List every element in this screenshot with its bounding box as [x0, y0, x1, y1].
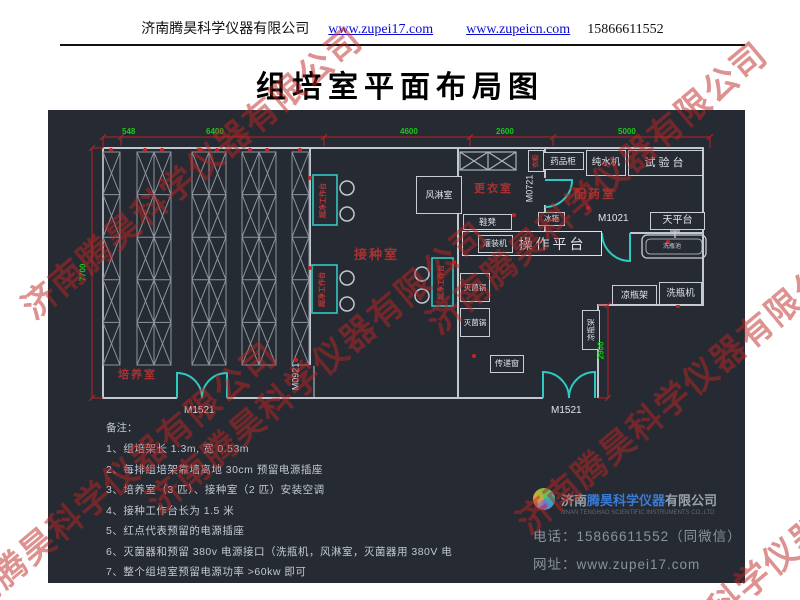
- room-label-inoculation: 接种室: [354, 248, 399, 261]
- bottle-rack-vertical-label: 凉瓶架: [587, 319, 595, 342]
- fridge-box: 冰箱: [538, 212, 565, 226]
- sterilizer-box-2: 灭菌锅: [460, 308, 490, 337]
- notes-heading: 备注：: [106, 420, 452, 435]
- door-label-m1021: M1021: [598, 214, 629, 224]
- pass-window-box: 传递窗: [490, 355, 524, 373]
- cad-panel: 培养室 接种室 更衣室 配药室 风淋室 药品柜 纯水机 试验台 冰箱 天平台 鞋…: [48, 110, 745, 583]
- dim-2600: 2600: [496, 127, 514, 136]
- note-item-2: 2、每排组培架靠墙离地 30cm 预留电源插座: [106, 462, 452, 477]
- brand-block: 济南腾昊科学仪器有限公司 JINAN TENGHAO SCIENTIFIC IN…: [533, 488, 743, 573]
- bottle-washer-box: 洗瓶机: [659, 282, 702, 305]
- page-title: 组培室平面布局图: [0, 62, 800, 106]
- dim-6400: 6400: [206, 127, 224, 136]
- note-item-4: 4、接种工作台长为 1.5 米: [106, 503, 452, 518]
- room-label-culture: 培养室: [118, 370, 157, 381]
- wardrobe-label: 衣柜: [533, 155, 540, 168]
- operation-platform-label: 操作平台: [519, 237, 587, 251]
- header-company: 济南腾昊科学仪器有限公司: [141, 22, 309, 37]
- test-bench-box: 试验台: [628, 150, 703, 176]
- clean-bench-label-1: 超净工作台: [320, 183, 327, 218]
- note-item-3: 3、培养室（3 匹）、接种室（2 匹）安装空调: [106, 482, 452, 497]
- page: 济南腾昊科学仪器有限公司 www.zupei17.com www.zupeicn…: [0, 0, 800, 600]
- balance-table-box: 天平台: [650, 212, 705, 230]
- brand-company-name: 济南腾昊科学仪器有限公司: [561, 490, 717, 509]
- dim-2900: 2900: [596, 342, 605, 360]
- door-label-m1521-right: M1521: [551, 406, 582, 416]
- culture-racks: [103, 152, 309, 365]
- room-label-changing: 更衣室: [474, 184, 513, 195]
- note-item-5: 5、红点代表预留的电源插座: [106, 523, 452, 538]
- walls: [103, 148, 703, 398]
- operation-platform-box: 灌装机 操作平台: [462, 231, 602, 256]
- water-purifier-box: 纯水机: [586, 150, 626, 176]
- clean-bench-label-2: 超净工作台: [319, 272, 326, 307]
- brand-prefix: 济南: [561, 493, 587, 508]
- sterilizer-box-1: 灭菌锅: [460, 273, 490, 302]
- brand-company-name-en: JINAN TENGHAO SCIENTIFIC INSTRUMENTS CO.…: [561, 510, 743, 516]
- brand-website: 网址：www.zupei17.com: [533, 553, 743, 573]
- medicine-cabinet-box: 药品柜: [542, 152, 584, 170]
- bottle-sink-label: 洗瓶池: [663, 244, 681, 250]
- door-label-m1521-left: M1521: [184, 406, 215, 416]
- note-item-6: 6、灭菌器和预留 380v 电源接口（洗瓶机，风淋室，灭菌器用 380V 电: [106, 544, 452, 559]
- header-link-zupei17[interactable]: www.zupei17.com: [328, 22, 433, 37]
- clean-bench-label-3: 超净工作台: [438, 265, 445, 300]
- door-label-m0921: M0921: [291, 363, 300, 391]
- brand-suffix: 有限公司: [665, 493, 717, 508]
- brand-phone: 电话：15866611552（同微信）: [533, 525, 743, 545]
- wardrobe-box: 衣柜: [528, 150, 544, 172]
- dim-5000: 5000: [618, 127, 636, 136]
- company-logo-icon: [533, 488, 555, 510]
- header: 济南腾昊科学仪器有限公司 www.zupei17.com www.zupeicn…: [60, 18, 745, 46]
- air-shower-box: 风淋室: [416, 176, 462, 214]
- dim-4600: 4600: [400, 127, 418, 136]
- header-link-zupeicn[interactable]: www.zupeicn.com: [466, 22, 570, 37]
- locker-cabinets: [460, 152, 516, 170]
- note-item-7: 7、整个组培室预留电源功率 >60kw 即可: [106, 564, 452, 579]
- dim-7700: 7700: [78, 264, 87, 282]
- filling-machine-box: 灌装机: [478, 235, 513, 253]
- door-label-m0721: M0721: [525, 175, 534, 203]
- shoe-bench-box: 鞋凳: [463, 214, 512, 230]
- room-label-dispensing: 配药室: [574, 188, 616, 200]
- notes-block: 备注： 1、组培架长 1.3m, 宽 0.53m 2、每排组培架靠墙离地 30c…: [106, 420, 452, 583]
- note-item-1: 1、组培架长 1.3m, 宽 0.53m: [106, 441, 452, 456]
- brand-name: 腾昊科学仪器: [587, 493, 665, 508]
- header-phone: 15866611552: [587, 22, 663, 37]
- bottle-rack-box: 凉瓶架: [612, 285, 657, 305]
- dim-548: 548: [122, 127, 135, 136]
